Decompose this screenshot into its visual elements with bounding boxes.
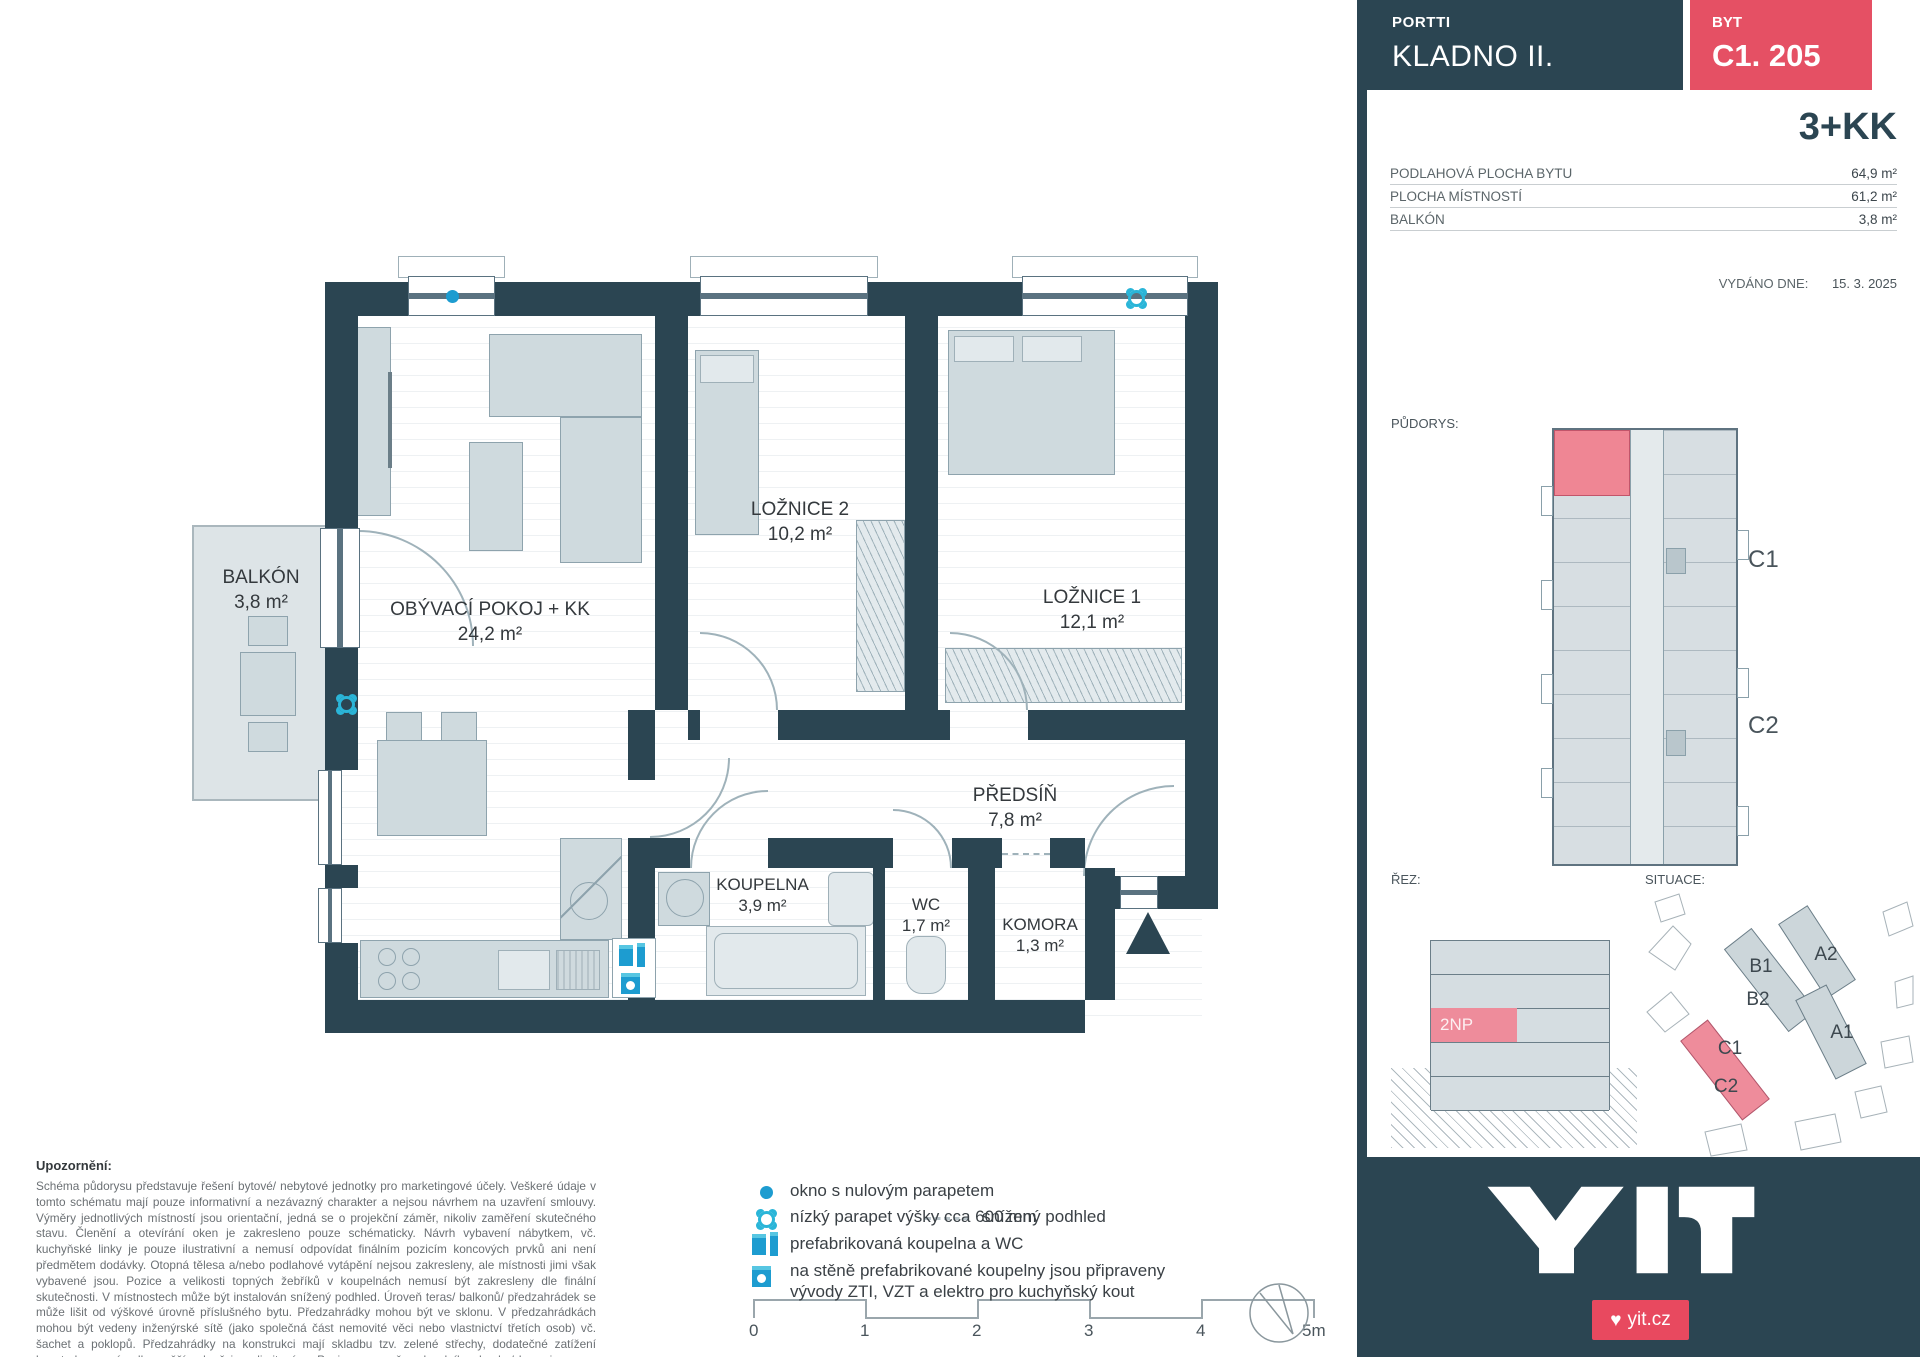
svg-text:C1: C1 — [1718, 1038, 1742, 1059]
prefab-bathroom-icon — [770, 1232, 778, 1256]
issue-date: VYDÁNO DNE: 15. 3. 2025 — [1390, 276, 1897, 291]
room-label-storage: KOMORA1,3 m² — [975, 914, 1105, 957]
section-label-situace: SITUACE: — [1645, 872, 1705, 887]
building-overview — [1552, 428, 1738, 866]
wall — [873, 868, 885, 1000]
stove-burner — [378, 948, 396, 966]
bathtub-inner — [714, 933, 858, 989]
highlighted-floor: 2NP — [1431, 1008, 1517, 1042]
disclaimer-text: Schéma půdorysu představuje řešení bytov… — [36, 1179, 596, 1357]
balcony-table — [240, 652, 296, 716]
entrance-arrow-icon — [1126, 912, 1170, 954]
floor-band — [1431, 975, 1609, 1009]
kitchen-sink — [498, 950, 550, 990]
stove-burner — [402, 972, 420, 990]
svg-text:A1: A1 — [1830, 1022, 1853, 1043]
prefab-bathroom-icon — [619, 945, 633, 966]
window — [1022, 276, 1188, 316]
row-value: 64,9 m² — [1851, 166, 1897, 181]
disclaimer: Upozornění: Schéma půdorysu představuje … — [36, 1158, 596, 1357]
prefab-marker-block — [612, 938, 656, 998]
zero-sill-window-icon — [446, 290, 459, 303]
disposition: 3+KK — [1390, 106, 1897, 149]
room-label-wc: WC1,7 m² — [886, 894, 966, 937]
room-label-bathroom: KOUPELNA3,9 m² — [690, 874, 835, 917]
website-text: yit.cz — [1628, 1309, 1671, 1331]
disclaimer-title: Upozornění: — [36, 1158, 596, 1173]
legend-label: na stěně prefabrikované koupelny jsou př… — [790, 1260, 1180, 1303]
coffee-table — [469, 442, 523, 551]
sidebar-divider — [1357, 0, 1367, 1357]
wall — [778, 710, 950, 740]
block-label-c2: C2 — [1748, 712, 1779, 740]
unit-label: BYT — [1712, 14, 1742, 31]
low-sill-window-icon — [1128, 290, 1145, 307]
window-sill — [1012, 256, 1198, 278]
floor-band — [1431, 1077, 1609, 1111]
low-sill-window-icon — [758, 1211, 775, 1228]
room-label-bedroom1: LOŽNICE 112,1 m² — [985, 586, 1199, 635]
prefab-bathroom-icon — [752, 1234, 766, 1255]
row-value: 61,2 m² — [1851, 189, 1897, 204]
svg-text:A2: A2 — [1814, 944, 1837, 965]
stove-burner — [402, 948, 420, 966]
room-label-hall: PŘEDSÍŇ7,8 m² — [940, 784, 1090, 833]
svg-text:3: 3 — [1084, 1321, 1093, 1338]
svg-text:4: 4 — [1196, 1321, 1205, 1338]
entry-door-opening — [1120, 876, 1158, 909]
tv — [388, 372, 392, 468]
highlighted-unit — [1554, 430, 1630, 496]
wall — [655, 316, 688, 710]
stairwell — [1666, 730, 1686, 756]
wall — [952, 838, 1002, 868]
window — [318, 888, 342, 943]
room-label-living: OBÝVACÍ POKOJ + KK24,2 m² — [340, 598, 640, 647]
issue-date-value: 15. 3. 2025 — [1832, 276, 1897, 291]
svg-text:B2: B2 — [1746, 989, 1769, 1010]
row-label: BALKÓN — [1390, 212, 1445, 227]
wall — [325, 865, 358, 888]
site-plan: B1 B2 A2 A1 C1 C2 — [1645, 892, 1915, 1157]
issue-date-label: VYDÁNO DNE: — [1719, 276, 1809, 291]
table-row: PLOCHA MÍSTNOSTÍ 61,2 m² — [1390, 185, 1897, 208]
heart-icon: ♥ — [1610, 1311, 1621, 1330]
low-sill-window-icon — [338, 696, 355, 713]
table-row: PODLAHOVÁ PLOCHA BYTU 64,9 m² — [1390, 162, 1897, 185]
window — [318, 770, 342, 865]
dining-table — [377, 740, 487, 836]
pillow — [1022, 336, 1082, 362]
wall — [1050, 838, 1085, 868]
unit-number: C1. 205 — [1712, 38, 1821, 74]
wall — [628, 710, 655, 780]
room-label-bedroom2: LOŽNICE 210,2 m² — [700, 498, 900, 547]
wall — [495, 282, 700, 316]
room-label-balcony: BALKÓN3,8 m² — [196, 566, 326, 615]
area-table: PODLAHOVÁ PLOCHA BYTU 64,9 m² PLOCHA MÍS… — [1390, 162, 1897, 231]
project-name: PORTTI — [1392, 14, 1451, 31]
floor-band — [1431, 941, 1609, 975]
svg-text:1: 1 — [860, 1321, 869, 1338]
project-header: PORTTI KLADNO II. — [1357, 0, 1683, 90]
wall — [905, 316, 938, 710]
floor-plan: BALKÓN3,8 m² OBÝVACÍ POKOJ + KK24,2 m² L… — [0, 0, 1357, 1357]
wall — [628, 838, 690, 868]
table-row: BALKÓN 3,8 m² — [1390, 208, 1897, 231]
project-location: KLADNO II. — [1392, 40, 1554, 74]
floorplan-sheet: BALKÓN3,8 m² OBÝVACÍ POKOJ + KK24,2 m² L… — [0, 0, 1920, 1357]
window-sill — [398, 256, 505, 278]
unit-badge: BYT C1. 205 — [1690, 0, 1872, 90]
sofa — [489, 334, 642, 417]
yit-logo — [1482, 1181, 1758, 1279]
svg-text:C2: C2 — [1714, 1076, 1738, 1097]
svg-text:0: 0 — [749, 1321, 758, 1338]
kitchen-outlets-icon — [752, 1266, 771, 1287]
wall — [1158, 876, 1218, 909]
kitchen-appliance — [570, 882, 608, 920]
balcony-chair — [248, 616, 288, 646]
prefab-bathroom-icon — [637, 943, 645, 967]
wall — [325, 1000, 1085, 1033]
legend-label: okno s nulovým parapetem — [790, 1181, 994, 1201]
sink-drainer — [556, 950, 600, 990]
balcony-chair — [248, 722, 288, 752]
wall — [768, 838, 893, 868]
north-compass-icon — [1246, 1280, 1312, 1346]
block-label-c1: C1 — [1748, 546, 1779, 574]
lowered-ceiling-line — [1002, 853, 1050, 855]
svg-text:B1: B1 — [1749, 956, 1772, 977]
row-label: PODLAHOVÁ PLOCHA BYTU — [1390, 166, 1572, 181]
legend-label: prefabrikovaná koupelna a WC — [790, 1234, 1023, 1254]
wall — [325, 282, 358, 530]
section-label-pudorys: PŮDORYS: — [1391, 416, 1459, 431]
tv-board — [357, 327, 391, 516]
stairwell — [1666, 548, 1686, 574]
wall — [868, 282, 1022, 316]
kitchen-outlets-icon — [621, 973, 640, 994]
floor-band — [1431, 1043, 1609, 1077]
window — [700, 276, 868, 316]
building-section: 2NP — [1430, 940, 1610, 1110]
yit-website-badge[interactable]: ♥ yit.cz — [1592, 1300, 1689, 1340]
wall — [1028, 710, 1185, 740]
svg-text:2: 2 — [972, 1321, 981, 1338]
window-sill — [690, 256, 878, 278]
sofa — [560, 417, 642, 563]
corridor — [1630, 430, 1664, 864]
wall — [688, 710, 700, 740]
zero-sill-window-icon — [760, 1186, 773, 1199]
stove-burner — [378, 972, 396, 990]
row-value: 3,8 m² — [1859, 212, 1897, 227]
legend-label: snížený podhled — [982, 1207, 1106, 1227]
pillow — [700, 355, 754, 383]
row-label: PLOCHA MÍSTNOSTÍ — [1390, 189, 1522, 204]
toilet — [906, 936, 946, 994]
section-label-rez: ŘEZ: — [1391, 872, 1421, 887]
pillow — [954, 336, 1014, 362]
